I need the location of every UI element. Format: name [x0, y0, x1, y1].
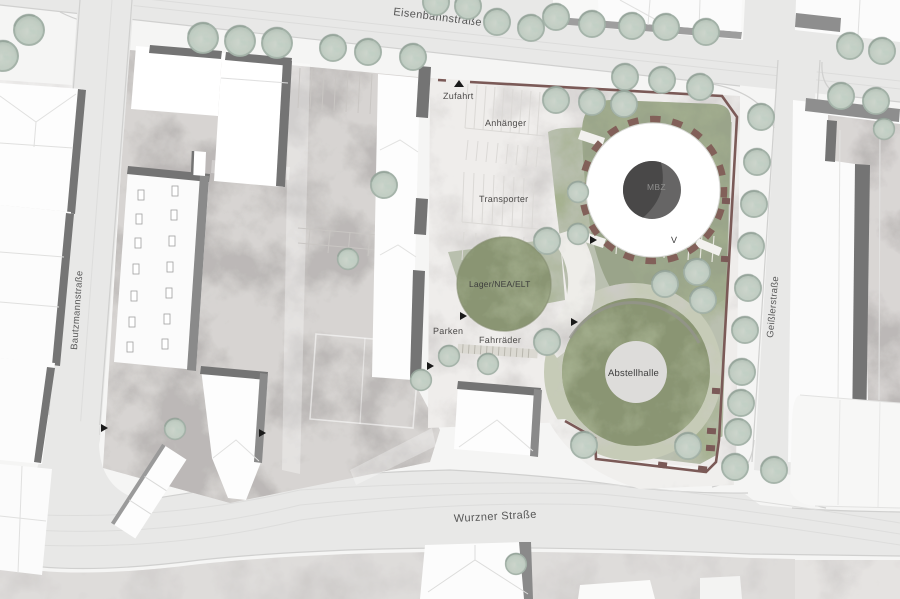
svg-text:Anhänger: Anhänger: [485, 118, 526, 128]
svg-text:Lager/NEA/ELT: Lager/NEA/ELT: [469, 279, 531, 289]
svg-text:Parken: Parken: [433, 326, 463, 336]
svg-text:Abstellhalle: Abstellhalle: [608, 368, 659, 379]
svg-text:MBZ: MBZ: [647, 182, 666, 192]
svg-text:Fahrräder: Fahrräder: [479, 335, 521, 345]
svg-text:Transporter: Transporter: [479, 194, 528, 204]
svg-text:Zufahrt: Zufahrt: [443, 91, 474, 101]
svg-text:V: V: [671, 235, 677, 245]
